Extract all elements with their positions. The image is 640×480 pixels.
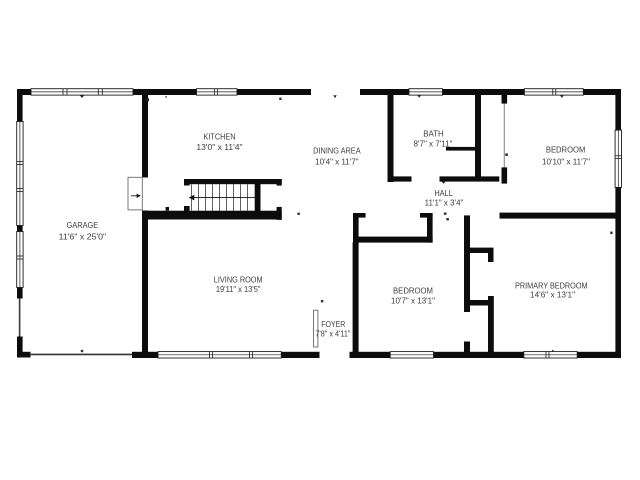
svg-text:DINING AREA: DINING AREA <box>313 146 361 156</box>
svg-text:11'6" x 25'0": 11'6" x 25'0" <box>59 232 107 242</box>
svg-text:10'10" x 11'7": 10'10" x 11'7" <box>542 156 590 166</box>
svg-text:10'4" x 11'7": 10'4" x 11'7" <box>315 157 359 167</box>
svg-text:10'7" x 13'1": 10'7" x 13'1" <box>391 296 435 306</box>
svg-text:7'8" x 4'11": 7'8" x 4'11" <box>315 328 350 338</box>
svg-text:BEDROOM: BEDROOM <box>546 145 586 155</box>
svg-text:19'11" x 13'5": 19'11" x 13'5" <box>216 284 261 294</box>
svg-text:GARAGE: GARAGE <box>67 220 99 230</box>
svg-text:BATH: BATH <box>423 129 444 139</box>
svg-text:13'0" x 11'4": 13'0" x 11'4" <box>196 142 242 152</box>
svg-text:14'6" x 13'1": 14'6" x 13'1" <box>530 289 575 299</box>
svg-text:KITCHEN: KITCHEN <box>203 131 235 141</box>
svg-text:8'7" x 7'11": 8'7" x 7'11" <box>414 139 453 149</box>
svg-text:BEDROOM: BEDROOM <box>393 286 433 296</box>
svg-text:11'1" x 3'4": 11'1" x 3'4" <box>425 197 464 207</box>
